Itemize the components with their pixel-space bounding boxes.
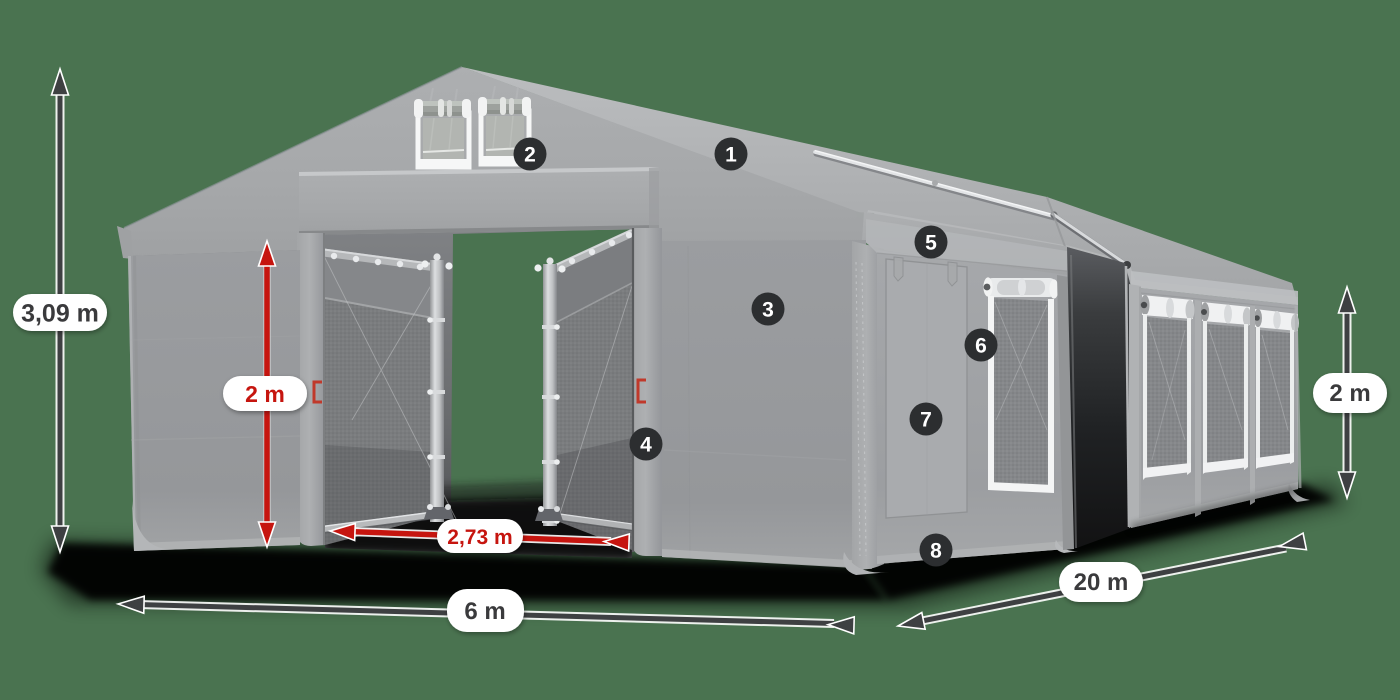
svg-text:2,73 m: 2,73 m bbox=[447, 526, 512, 549]
svg-text:2 m: 2 m bbox=[1329, 380, 1370, 407]
svg-text:7: 7 bbox=[920, 409, 932, 432]
svg-text:6 m: 6 m bbox=[464, 598, 505, 625]
svg-text:4: 4 bbox=[640, 434, 652, 457]
svg-text:1: 1 bbox=[725, 144, 737, 167]
svg-text:3: 3 bbox=[762, 299, 774, 322]
svg-text:5: 5 bbox=[925, 232, 937, 255]
svg-text:8: 8 bbox=[930, 540, 942, 563]
svg-text:3,09 m: 3,09 m bbox=[21, 300, 99, 328]
svg-text:2: 2 bbox=[524, 144, 536, 167]
svg-text:2 m: 2 m bbox=[245, 381, 285, 407]
svg-text:6: 6 bbox=[975, 335, 987, 358]
svg-text:20 m: 20 m bbox=[1074, 569, 1129, 596]
